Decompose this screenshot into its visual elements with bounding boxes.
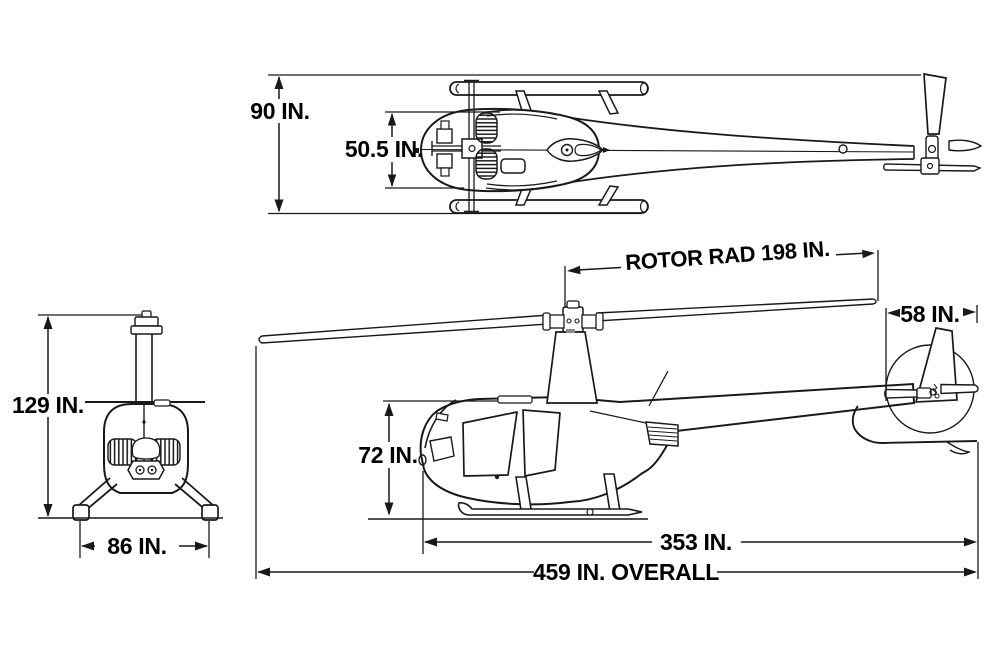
door-window-front <box>463 412 517 476</box>
arrowhead-right <box>963 308 976 317</box>
arrowhead-up <box>275 76 284 89</box>
nose-vent-window <box>430 437 454 461</box>
side-window-plan <box>501 159 525 173</box>
dim-label-86in: 86 IN. <box>107 533 167 559</box>
tailboom-bottom-line <box>572 159 914 182</box>
cuff-fitting <box>441 168 449 176</box>
skid-leg <box>182 478 214 506</box>
instrument-console <box>128 461 164 479</box>
arrowhead-up <box>385 403 394 416</box>
arrowhead-left <box>257 568 270 577</box>
grip-cap <box>543 313 550 330</box>
arrowhead-up <box>388 113 396 126</box>
arrowhead-down <box>388 175 396 188</box>
main-rotor-blade-right <box>597 299 876 321</box>
skid-tube-left-plan <box>450 82 648 95</box>
tail-rotor-hub-plan <box>921 158 939 174</box>
arrowhead-left <box>81 542 94 551</box>
dim-86in: 86 IN. <box>80 521 209 559</box>
engine-louvre-panel <box>646 422 678 446</box>
arrowhead-down <box>385 503 394 516</box>
arrowhead-right <box>195 542 208 551</box>
dim-label-72in: 72 IN. <box>358 442 418 468</box>
front-view: 129 IN. 86 IN. <box>12 311 223 559</box>
boom-inspection-hole <box>839 145 847 153</box>
dim-label-129in: 129 IN. <box>12 392 84 418</box>
mast-placard <box>566 329 575 333</box>
roof-vent-front <box>154 400 170 406</box>
skid-tube-right-plan <box>450 200 648 213</box>
arrowhead-right <box>964 538 977 547</box>
door-handle <box>436 413 448 421</box>
dim-label-459in: 459 IN. OVERALL <box>533 559 719 585</box>
skid-leg <box>78 478 110 506</box>
arrowhead-right <box>862 250 875 259</box>
main-rotor-blade-left <box>259 315 549 343</box>
roof-vent-side <box>498 396 532 403</box>
arrowhead-up <box>44 316 53 329</box>
skid-leg <box>85 484 117 511</box>
arrowhead-right <box>964 568 977 577</box>
cuff-fitting <box>441 121 449 129</box>
rotor-hub-front <box>131 326 162 334</box>
helicopter-three-view-drawing: 90 IN. 50.5 IN. <box>0 0 996 664</box>
dim-rotor-rad: ROTOR RAD 198 IN. <box>565 236 878 308</box>
rotor-hub-front <box>135 317 158 326</box>
fairing-tip <box>603 147 610 153</box>
skid-fitting <box>587 509 593 515</box>
blade-cuff <box>437 129 452 143</box>
dim-label-90in: 90 IN. <box>250 98 310 124</box>
dim-label-353in: 353 IN. <box>660 529 732 555</box>
arrowhead-left <box>887 309 900 318</box>
tail-gearbox-side <box>917 388 931 398</box>
blade-cuff <box>437 154 452 168</box>
seat-hatch-plan <box>476 149 497 179</box>
tailboom-top-line <box>572 118 914 146</box>
mast-fairing-side <box>547 332 597 403</box>
dial-dot <box>151 469 153 471</box>
side-view: ROTOR RAD 198 IN. 58 IN. 72 IN. <box>256 236 978 585</box>
door-window-rear <box>523 410 560 476</box>
mast-center-dot <box>566 149 569 152</box>
tail-fin-plan <box>924 74 946 134</box>
tail-rotor-blade-left <box>885 390 917 399</box>
horizontal-stab-plan <box>949 140 981 151</box>
drawing-svg: 90 IN. 50.5 IN. <box>0 0 996 664</box>
dim-label-58in: 58 IN. <box>900 301 960 327</box>
tail-skid-hook <box>947 442 969 454</box>
grip-cap <box>596 313 603 330</box>
top-view: 90 IN. 50.5 IN. <box>250 74 981 214</box>
dim-label-50-5in: 50.5 IN. <box>345 136 423 162</box>
seat-hatch-plan <box>476 113 497 143</box>
rotor-hub-side <box>563 307 583 332</box>
tail-rotor-blade-right <box>941 385 978 394</box>
dial-dot <box>139 469 141 471</box>
arrowhead-left <box>424 538 437 547</box>
arrowhead-down <box>275 200 284 213</box>
seam-dot <box>142 420 145 423</box>
fuselage-dot <box>495 475 499 479</box>
cyclic-control-blob <box>132 438 160 459</box>
arrowhead-down <box>44 504 53 517</box>
tail-skid <box>853 406 977 443</box>
dim-label-rotor-rad: ROTOR RAD 198 IN. <box>624 236 830 275</box>
hub-top-nub <box>567 301 579 308</box>
